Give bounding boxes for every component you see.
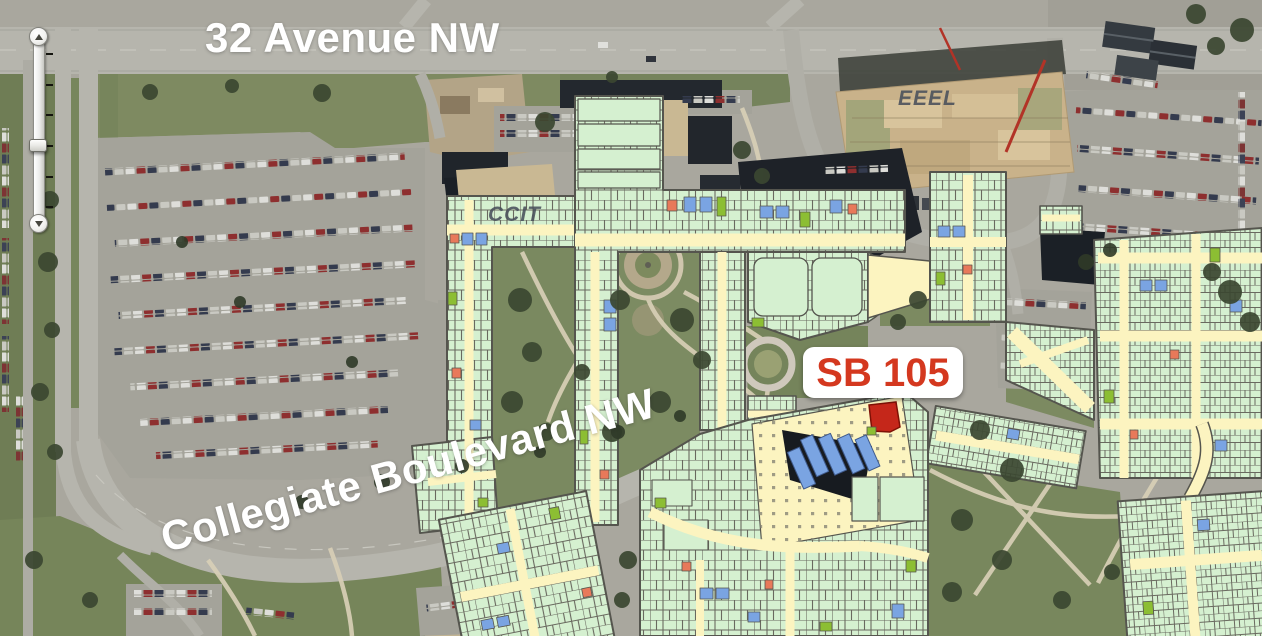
room-marker-label: SB 105 <box>816 353 949 393</box>
zoom-tick <box>46 84 53 86</box>
campus-map-viewport[interactable]: 32 Avenue NW Collegiate Boulevard NW CCI… <box>0 0 1262 636</box>
zoom-tick <box>46 145 53 147</box>
zoom-tick <box>46 53 53 55</box>
highlighted-room-sb105 <box>867 402 900 435</box>
zoom-tick <box>46 206 53 208</box>
zoom-tick <box>46 114 53 116</box>
zoom-tick <box>46 176 53 178</box>
street-label-32-avenue-nw: 32 Avenue NW <box>205 17 500 59</box>
zoom-slider-handle[interactable] <box>29 139 47 152</box>
triangle-down-icon <box>35 221 43 227</box>
zoom-slider-track[interactable] <box>33 40 45 224</box>
zoom-in-button[interactable] <box>29 27 48 46</box>
room-marker-sb105: SB 105 <box>803 347 963 398</box>
triangle-up-icon <box>35 34 43 40</box>
building-label-eeel: EEEL <box>898 88 957 109</box>
building-label-ccit: CCIT <box>488 204 541 225</box>
zoom-out-button[interactable] <box>29 214 48 233</box>
zoom-control <box>0 0 60 245</box>
